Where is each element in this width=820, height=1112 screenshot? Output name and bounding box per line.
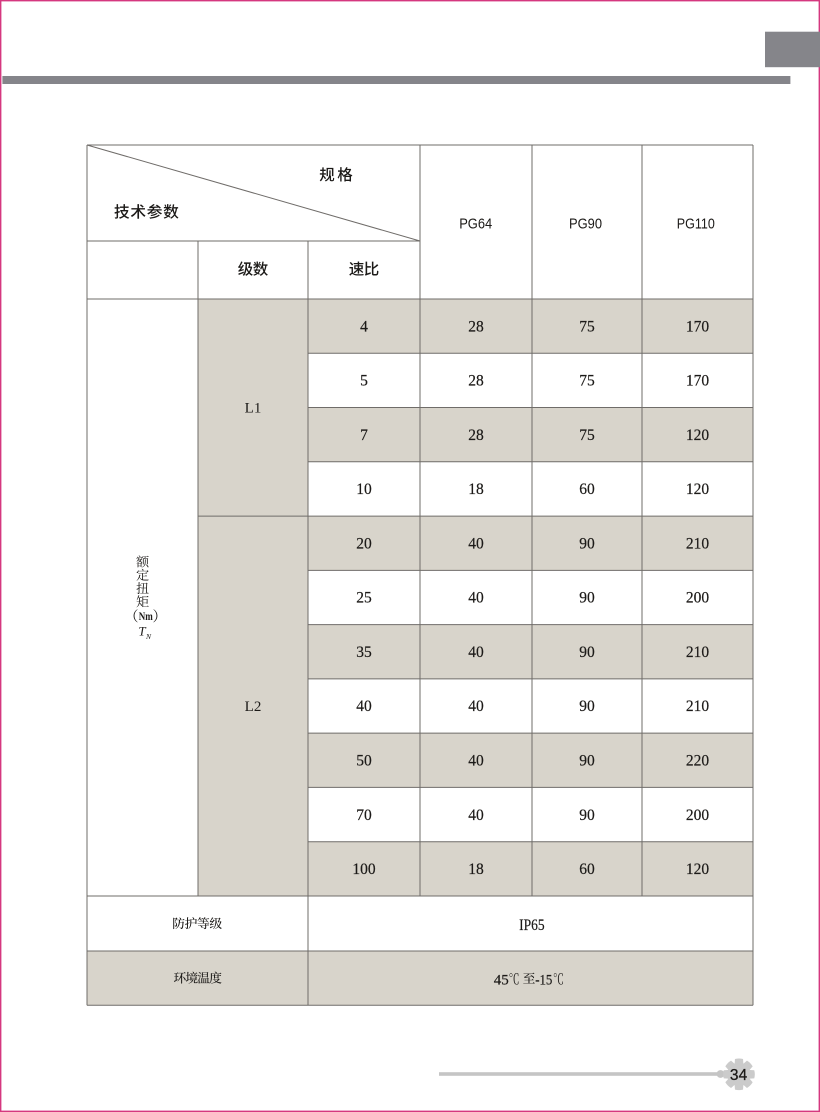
svg-text:PG110: PG110 xyxy=(677,215,715,232)
svg-text:28: 28 xyxy=(468,373,484,390)
svg-text:40: 40 xyxy=(468,807,484,824)
svg-text:120: 120 xyxy=(686,861,710,878)
svg-text:90: 90 xyxy=(579,698,595,715)
svg-text:5: 5 xyxy=(360,373,368,390)
svg-text:18: 18 xyxy=(468,861,484,878)
svg-text:PG90: PG90 xyxy=(569,215,602,232)
svg-text:40: 40 xyxy=(468,590,484,607)
svg-text:200: 200 xyxy=(686,590,710,607)
svg-text:210: 210 xyxy=(686,535,710,552)
svg-text:-15: -15 xyxy=(535,972,552,988)
svg-text:220: 220 xyxy=(686,753,710,770)
svg-text:45: 45 xyxy=(494,972,509,988)
svg-text:75: 75 xyxy=(579,427,595,444)
svg-text:40: 40 xyxy=(356,698,372,715)
svg-text:IP65: IP65 xyxy=(519,917,545,934)
svg-text:90: 90 xyxy=(579,753,595,770)
svg-text:40: 40 xyxy=(468,644,484,661)
svg-text:20: 20 xyxy=(356,535,372,552)
svg-text:120: 120 xyxy=(686,481,710,498)
svg-text:75: 75 xyxy=(579,318,595,335)
svg-text:PG64: PG64 xyxy=(459,215,492,232)
svg-text:40: 40 xyxy=(468,698,484,715)
svg-text:28: 28 xyxy=(468,318,484,335)
svg-text:90: 90 xyxy=(579,644,595,661)
svg-text:34: 34 xyxy=(730,1067,748,1084)
svg-text:50: 50 xyxy=(356,753,372,770)
svg-text:40: 40 xyxy=(468,535,484,552)
svg-text:28: 28 xyxy=(468,427,484,444)
svg-text:10: 10 xyxy=(356,481,372,498)
svg-text:25: 25 xyxy=(356,590,372,607)
svg-text:100: 100 xyxy=(352,861,376,878)
svg-text:170: 170 xyxy=(686,373,710,390)
svg-text:60: 60 xyxy=(579,481,595,498)
svg-text:200: 200 xyxy=(686,807,710,824)
svg-text:210: 210 xyxy=(686,644,710,661)
svg-text:L2: L2 xyxy=(245,699,262,715)
svg-text:60: 60 xyxy=(579,861,595,878)
svg-text:90: 90 xyxy=(579,590,595,607)
svg-text:40: 40 xyxy=(468,753,484,770)
svg-text:L1: L1 xyxy=(245,401,262,417)
svg-text:7: 7 xyxy=(360,427,368,444)
svg-text:120: 120 xyxy=(686,427,710,444)
svg-text:170: 170 xyxy=(686,318,710,335)
svg-text:75: 75 xyxy=(579,373,595,390)
svg-text:Nm: Nm xyxy=(139,609,153,623)
svg-text:90: 90 xyxy=(579,807,595,824)
svg-text:210: 210 xyxy=(686,698,710,715)
svg-text:35: 35 xyxy=(356,644,372,661)
svg-text:18: 18 xyxy=(468,481,484,498)
svg-text:70: 70 xyxy=(356,807,372,824)
svg-text:90: 90 xyxy=(579,535,595,552)
svg-text:4: 4 xyxy=(360,318,368,335)
svg-text:N: N xyxy=(145,632,152,641)
